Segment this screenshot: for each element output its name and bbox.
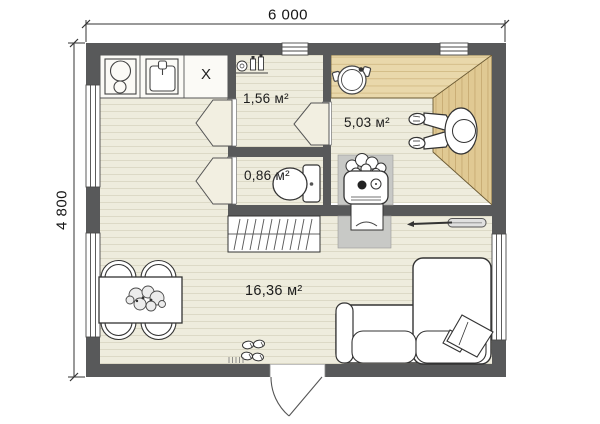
wall [236,147,323,157]
height-dimension-label: 4 800 [54,190,71,230]
wall [86,43,282,55]
width-dimension-label: 6 000 [268,7,308,24]
wall [86,364,270,377]
entry-area-label: 1,56 м² [243,91,289,106]
wall [492,43,506,234]
wall [323,145,331,205]
wc-area-label: 0,86 м² [244,168,290,183]
wall [325,364,506,377]
steam-area-label: 5,03 м² [344,115,390,130]
window-icon [492,234,506,340]
wall [228,146,236,157]
living-area-label: 16,36 м² [245,283,303,299]
window-icon [86,233,100,337]
coat-rack-icon [228,216,320,252]
wall [228,55,236,99]
entry-door-icon [270,364,325,416]
window-icon [86,85,100,187]
wall [323,55,331,102]
window-icon [282,43,308,55]
wall [308,43,440,55]
sauna-stove-icon [338,154,393,249]
wall [86,187,100,233]
cabinet-x-label: X [196,66,216,83]
window-icon [440,43,468,55]
floor-plan: 6 000 4 800 1,56 м² 5,03 м² 0,86 м² 16,3… [0,0,600,424]
floor-plan-drawing [0,0,600,424]
